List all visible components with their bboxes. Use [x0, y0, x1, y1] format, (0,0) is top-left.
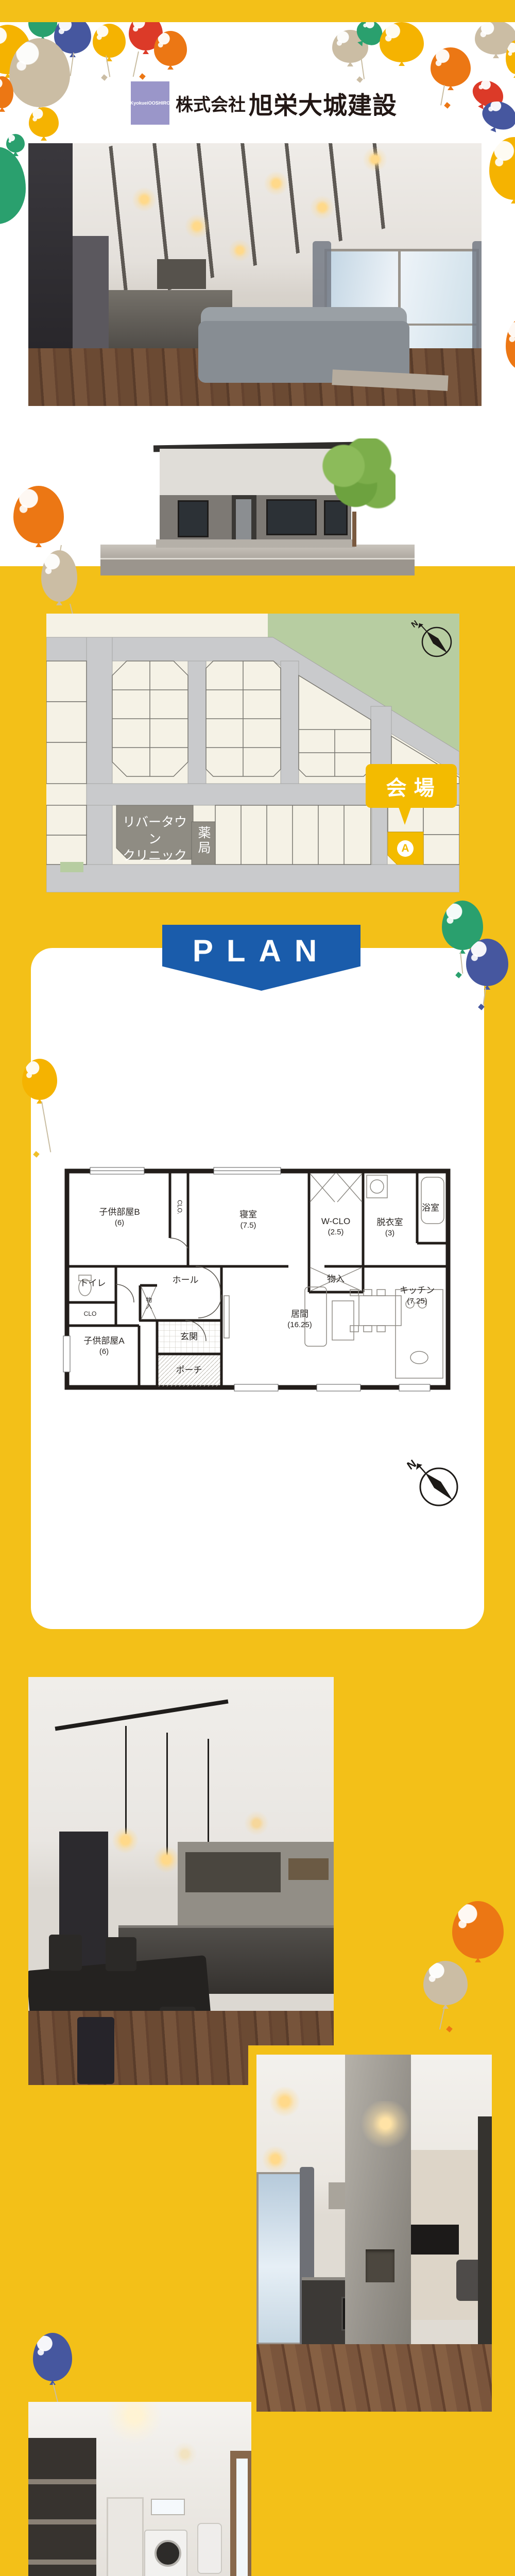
high-window	[151, 2499, 185, 2515]
balloon	[93, 24, 126, 58]
room-name: 物入	[327, 1274, 345, 1284]
balloon	[489, 137, 515, 200]
room-name: 寝室	[239, 1210, 257, 1219]
room-label-bath: 浴室	[422, 1202, 439, 1214]
company-logo: KyokueiOOSHIRO	[131, 81, 169, 125]
room-name: 子供部屋A	[83, 1336, 124, 1346]
room-name: 物入	[145, 1297, 152, 1309]
balloon-string-end	[101, 74, 108, 81]
room-name: キッチン	[400, 1285, 435, 1295]
site-map: N リバータウン クリニック 薬局 A	[46, 614, 459, 892]
pillar-niche	[366, 2249, 394, 2282]
map-clinic-line2: クリニック	[116, 848, 193, 865]
room-label-entrance: 玄関	[180, 1331, 198, 1343]
floor-plan-drawing	[62, 1166, 453, 1393]
room-name: 子供部屋B	[99, 1207, 140, 1217]
room-label-storage-top: 物入	[327, 1274, 345, 1285]
balloon	[154, 31, 187, 66]
photo-laundry-corridor	[28, 2402, 251, 2576]
balloon	[506, 318, 515, 370]
balloon	[0, 147, 26, 224]
room-label-clo-b: CLO.	[175, 1200, 183, 1214]
room-label-wclo: W-CLO (2.5)	[321, 1216, 350, 1238]
chair	[106, 1937, 136, 1971]
room-size: (7.5)	[239, 1221, 257, 1231]
venue-callout: 会場	[366, 764, 457, 808]
company-name: 株式会社 旭栄大城建設	[176, 81, 397, 125]
balloon	[33, 2333, 72, 2381]
room-size: (6)	[83, 1347, 124, 1357]
balloon-string	[133, 52, 139, 77]
road	[100, 558, 415, 575]
room-label-kitchen: キッチン (7.25)	[400, 1285, 435, 1307]
room-size: (3)	[377, 1228, 403, 1239]
dark-wall-right	[478, 2116, 492, 2359]
map-lot-a-marker: A	[397, 840, 414, 857]
window	[256, 2172, 304, 2345]
photo-kitchen-pillar	[256, 2055, 492, 2412]
balloon-string-end	[139, 73, 146, 80]
tree-crown	[316, 438, 396, 517]
room-label-clo-a: CLO	[84, 1310, 97, 1318]
photo-dining-kitchen	[28, 1677, 334, 2085]
light-track	[55, 1699, 228, 1731]
room-name: ポーチ	[176, 1365, 202, 1375]
tv	[410, 2225, 459, 2255]
map-lot-a-letter: A	[401, 842, 409, 855]
company-logo-text: KyokueiOOSHIRO	[130, 100, 170, 106]
photo-house-exterior	[100, 434, 415, 575]
venue-callout-label: 会場	[386, 771, 442, 801]
room-size: (7.25)	[400, 1296, 435, 1307]
tree-trunk	[352, 512, 356, 547]
company-name-main: 旭栄大城建設	[249, 86, 397, 121]
floor-plan-compass-label: N	[407, 1457, 419, 1472]
chair	[49, 1935, 82, 1971]
door-glass	[236, 2459, 248, 2576]
room-name: 居間	[291, 1309, 308, 1319]
room-name: W-CLO	[321, 1216, 350, 1226]
balloon	[41, 550, 77, 602]
balloon	[452, 1901, 504, 1959]
room-label-toilet: トイレ	[80, 1278, 106, 1289]
water-heater	[197, 2523, 222, 2574]
room-label-kids-b: 子供部屋B (6)	[99, 1207, 140, 1228]
photo-living-room	[28, 143, 482, 406]
room-label-bedroom: 寝室 (7.5)	[239, 1209, 257, 1231]
room-label-kids-a: 子供部屋A (6)	[83, 1335, 124, 1357]
room-name: CLO	[84, 1310, 97, 1317]
balloon	[466, 939, 508, 986]
room-name: CLO.	[176, 1200, 183, 1214]
balloon-string-end	[444, 102, 451, 109]
window-dark	[266, 499, 317, 535]
room-name: 玄関	[180, 1332, 198, 1342]
chair-front	[77, 2017, 114, 2084]
top-bar	[0, 0, 515, 22]
balloon	[13, 486, 64, 544]
foundation	[156, 539, 355, 548]
room-size: (16.25)	[287, 1320, 312, 1330]
balloon-string	[440, 85, 445, 106]
room-name: 浴室	[422, 1203, 439, 1213]
balloon	[423, 1961, 468, 2005]
room-label-hall: ホール	[173, 1275, 199, 1286]
balloon	[22, 1059, 57, 1100]
wall-art	[288, 1858, 329, 1880]
floor	[256, 2344, 492, 2412]
room-size: (6)	[99, 1218, 140, 1228]
map-clinic-line1: リバータウン	[116, 814, 193, 848]
shelf-board	[28, 2560, 96, 2565]
floor-plan: 子供部屋B (6) CLO. 寝室 (7.5) W-CLO (2.5) 脱衣室 …	[62, 1166, 453, 1393]
balloon	[380, 22, 424, 62]
door	[236, 499, 251, 543]
balloon-string	[360, 57, 365, 79]
room-label-storage-hall: 物入	[144, 1297, 152, 1309]
shelf-unit	[28, 2438, 96, 2576]
plan-banner-label: PLAN	[193, 934, 330, 968]
room-label-porch: ポーチ	[176, 1365, 202, 1376]
back-door	[107, 2497, 144, 2576]
range-hood	[157, 259, 206, 289]
map-compass: N	[411, 616, 458, 664]
shelf-board	[28, 2519, 96, 2524]
balloon	[9, 38, 70, 107]
pillar-spotlight	[354, 2101, 411, 2158]
floor-plan-compass: N	[407, 1454, 466, 1513]
room-name: 脱衣室	[377, 1217, 403, 1227]
room-label-living: 居間 (16.25)	[287, 1309, 312, 1330]
balloon	[6, 134, 25, 152]
room-label-dressing: 脱衣室 (3)	[377, 1217, 403, 1239]
balloon	[431, 47, 471, 87]
balloon	[29, 107, 59, 137]
room-name: ホール	[173, 1275, 199, 1285]
shelf-board	[28, 2479, 96, 2484]
window-dark	[178, 500, 209, 537]
map-clinic-label: リバータウン クリニック	[116, 814, 193, 865]
room-size: (2.5)	[321, 1227, 350, 1238]
room-name: トイレ	[80, 1278, 106, 1288]
dryer-door	[154, 2540, 181, 2567]
upper-cabinet	[185, 1852, 281, 1892]
company-name-prefix: 株式会社	[176, 91, 246, 116]
map-pharmacy-label: 薬局	[194, 826, 213, 856]
